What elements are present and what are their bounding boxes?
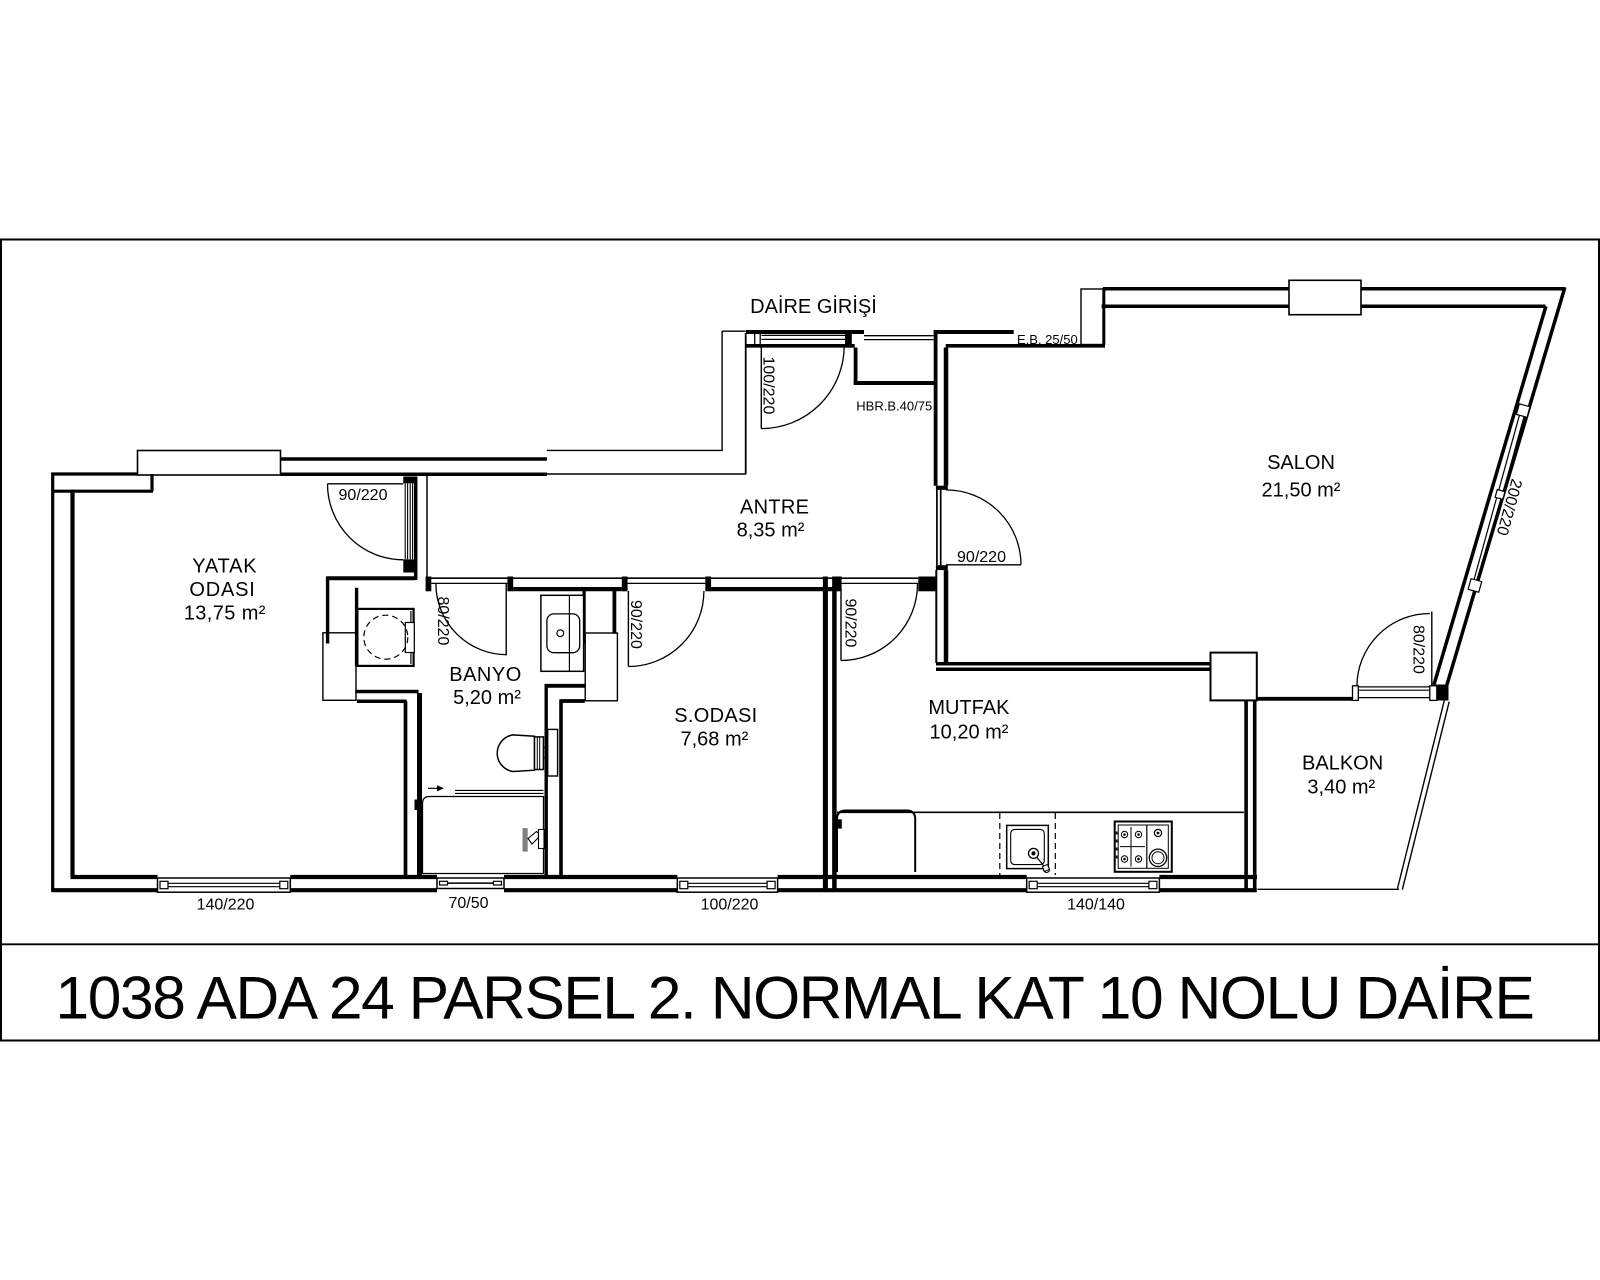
svg-text:70/50: 70/50: [448, 895, 488, 912]
svg-text:3,40 m²: 3,40 m²: [1307, 777, 1375, 799]
svg-text:90/220: 90/220: [842, 599, 859, 648]
svg-text:21,50 m²: 21,50 m²: [1262, 479, 1341, 501]
svg-text:1038 ADA 24 PARSEL 2. NORMAL K: 1038 ADA 24 PARSEL 2. NORMAL KAT 10 NOLU…: [56, 964, 1534, 1032]
svg-text:13,75 m²: 13,75 m²: [184, 603, 266, 625]
svg-text:MUTFAK: MUTFAK: [928, 697, 1010, 719]
svg-text:80/220: 80/220: [1410, 625, 1427, 674]
svg-text:10,20 m²: 10,20 m²: [930, 722, 1009, 744]
svg-text:BANYO: BANYO: [449, 664, 522, 686]
svg-text:ANTRE: ANTRE: [740, 496, 809, 518]
svg-text:100/220: 100/220: [701, 897, 759, 914]
svg-text:140/140: 140/140: [1067, 897, 1125, 914]
svg-text:90/220: 90/220: [339, 487, 388, 504]
svg-text:90/220: 90/220: [627, 600, 644, 649]
svg-text:80/220: 80/220: [434, 597, 451, 646]
svg-text:100/220: 100/220: [760, 357, 777, 415]
svg-text:90/220: 90/220: [957, 549, 1006, 566]
svg-text:DAİRE GİRİŞİ: DAİRE GİRİŞİ: [750, 295, 877, 318]
svg-text:S.ODASI: S.ODASI: [674, 705, 757, 727]
svg-text:BALKON: BALKON: [1302, 753, 1383, 775]
svg-text:140/220: 140/220: [197, 897, 255, 914]
svg-text:8,35 m²: 8,35 m²: [737, 520, 805, 542]
svg-text:HBR.B.40/75: HBR.B.40/75: [856, 399, 932, 414]
svg-text:5,20 m²: 5,20 m²: [453, 687, 521, 709]
svg-text:7,68 m²: 7,68 m²: [680, 728, 748, 750]
svg-text:YATAK: YATAK: [192, 556, 257, 578]
svg-text:SALON: SALON: [1267, 452, 1335, 474]
svg-text:ODASI: ODASI: [189, 579, 255, 601]
